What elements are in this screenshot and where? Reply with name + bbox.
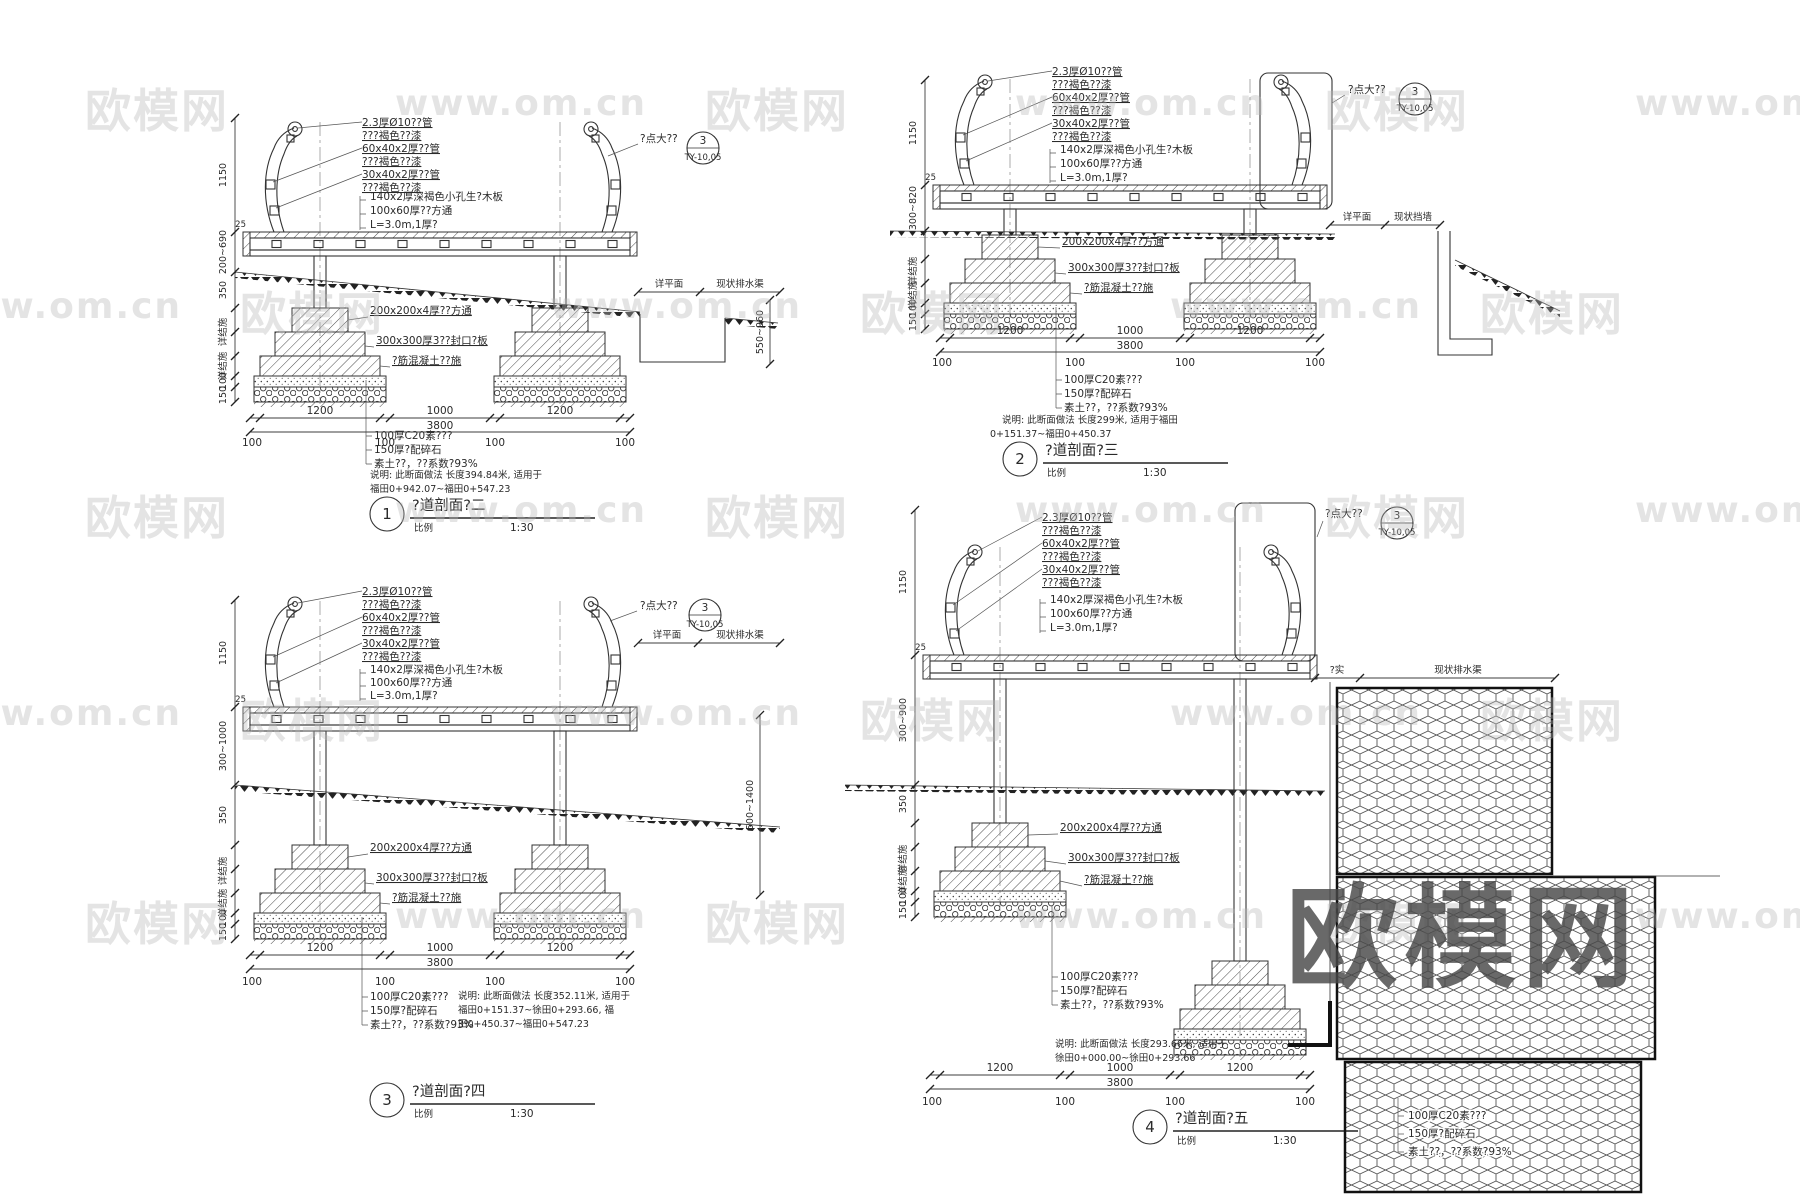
edge-dim-label: 100 xyxy=(375,437,395,449)
footing-spec-label: 300x300厚3??封口?板 xyxy=(376,871,488,884)
footing-spec-label: 200x200x4厚??方通 xyxy=(370,304,472,317)
detail-title: ?道剖面?五 xyxy=(1175,1110,1248,1127)
footing-spec-label: 300x300厚3??封口?板 xyxy=(1068,261,1180,274)
footing-left xyxy=(934,823,1066,922)
base-spec-label: 100厚C20素??? xyxy=(370,990,448,1003)
deck xyxy=(933,185,1327,209)
gabion-block xyxy=(1345,1062,1641,1192)
footing-spec-label: ?筋混凝土??施 xyxy=(1084,281,1154,294)
reference-label: 现状排水渠 xyxy=(1434,664,1482,676)
railing-spec-label: 30x40x2厚??管 xyxy=(362,168,440,181)
deck-spec-label: L=3.0m,1厚? xyxy=(370,690,438,702)
offset-dim-label: 25 xyxy=(235,220,246,230)
edge-dim-label: 100 xyxy=(615,976,635,988)
edge-dim-label: 100 xyxy=(242,976,262,988)
dim-label: 1200 xyxy=(307,405,334,417)
callout-ref: TY-10,05 xyxy=(1378,528,1416,538)
left-railing xyxy=(955,75,992,185)
offset-dim-label: 25 xyxy=(235,695,246,705)
deck-spec-label: 100x60厚??方通 xyxy=(370,204,453,217)
reference-label: 详平面 xyxy=(653,629,682,641)
left-dim-label: 150 xyxy=(898,901,909,919)
left-dim-label: 300~1000 xyxy=(218,721,229,771)
left-dim-label: 1150 xyxy=(218,641,229,665)
dim-total-label: 3800 xyxy=(427,420,454,432)
detail-number: 3 xyxy=(382,1091,392,1109)
left-dim-label: 350 xyxy=(898,795,909,813)
edge-dim-label: 100 xyxy=(485,976,505,988)
railing-spec-label: ???褐色??漆 xyxy=(1052,78,1112,91)
note-line: 徐田0+000.00~徐田0+293.66 xyxy=(1055,1052,1195,1064)
railing-spec-label: 60x40x2厚??管 xyxy=(362,142,440,155)
reference-label: ?实 xyxy=(1330,664,1345,676)
detail-title: ?道剖面?四 xyxy=(412,1083,485,1100)
deck-spec-label: 140x2厚深褐色小孔生?木板 xyxy=(1060,143,1194,156)
dim-label: 1200 xyxy=(997,325,1024,337)
footing-spec-label: 200x200x4厚??方通 xyxy=(1062,235,1164,248)
callout-number: 3 xyxy=(700,135,707,147)
footing-right xyxy=(494,308,626,407)
dim-label: 1200 xyxy=(307,942,334,954)
detail-2: 2.3厚Ø10??管???褐色??漆60x40x2厚??管???褐色??漆30x… xyxy=(890,65,1560,479)
detail-title: ?道剖面?二 xyxy=(412,497,485,514)
gabion-steps: 100厚C20素???150厚?配碎石素土??，??系数?93% xyxy=(1337,688,1720,1192)
deck-spec-label: L=3.0m,1厚? xyxy=(1050,622,1118,634)
dim-label: 1200 xyxy=(547,405,574,417)
note-line: 福田0+151.37~徐田0+293.66, 福 xyxy=(458,1004,614,1016)
gabion-block xyxy=(1337,688,1552,874)
deck-spec-label: L=3.0m,1厚? xyxy=(370,219,438,231)
right-railing xyxy=(584,122,621,232)
footing-right xyxy=(494,845,626,944)
railing-spec-label: 30x40x2厚??管 xyxy=(362,637,440,650)
details-root: 2.3厚Ø10??管???褐色??漆60x40x2厚??管???褐色??漆30x… xyxy=(217,65,1720,1192)
railing-spec-label: ???褐色??漆 xyxy=(1052,104,1112,117)
footing-right xyxy=(1184,235,1316,334)
deck xyxy=(243,232,637,256)
scale-label: 比例 xyxy=(414,1108,433,1120)
dim-label: 1200 xyxy=(547,942,574,954)
left-dim-label: 1150 xyxy=(898,570,909,594)
dim-label: 1200 xyxy=(1237,325,1264,337)
callout-text: ?点大?? xyxy=(1348,83,1386,96)
gabion-block xyxy=(1337,877,1655,1059)
scale-label: 比例 xyxy=(1177,1135,1196,1147)
edge-dim-label: 100 xyxy=(1065,357,1085,369)
edge-dim-label: 100 xyxy=(1055,1096,1075,1108)
left-railing xyxy=(945,545,982,655)
left-dim-label: 1150 xyxy=(908,121,919,145)
deck-spec-label: 140x2厚深褐色小孔生?木板 xyxy=(1050,593,1184,606)
base-spec-label: 150厚?配碎石 xyxy=(1060,984,1128,997)
railing-spec-label: 30x40x2厚??管 xyxy=(1042,563,1120,576)
dim-label: 1000 xyxy=(427,405,454,417)
deck-spec-label: 100x60厚??方通 xyxy=(1050,607,1133,620)
base-spec-label: 100厚C20素??? xyxy=(1408,1109,1486,1122)
edge-dim-label: 100 xyxy=(932,357,952,369)
footing-left xyxy=(254,845,386,944)
base-spec-label: 100厚C20素??? xyxy=(1064,373,1142,386)
deck-spec-label: L=3.0m,1厚? xyxy=(1060,172,1128,184)
note-line: 0+151.37~福田0+450.37 xyxy=(990,428,1111,440)
footing-spec-label: 300x300厚3??封口?板 xyxy=(376,334,488,347)
edge-dim-label: 100 xyxy=(1165,1096,1185,1108)
railing-spec-label: 60x40x2厚??管 xyxy=(1042,537,1120,550)
dim-label: 1200 xyxy=(987,1062,1014,1074)
railing-spec-label: ???褐色??漆 xyxy=(362,598,422,611)
callout-boundary xyxy=(1235,503,1315,661)
edge-dim-label: 100 xyxy=(242,437,262,449)
detail-number: 2 xyxy=(1015,450,1025,468)
left-dim-label: 150 xyxy=(218,923,229,941)
note-line: 说明: 此断面做法 长度299米, 适用于福田 xyxy=(1002,414,1178,426)
edge-dim-label: 100 xyxy=(1295,1096,1315,1108)
retaining-wall xyxy=(1438,231,1492,355)
railing-spec-label: 2.3厚Ø10??管 xyxy=(1042,511,1112,524)
left-dim-label: 150 xyxy=(218,386,229,404)
offset-dim-label: 25 xyxy=(925,173,936,183)
scale-value: 1:30 xyxy=(1143,467,1167,479)
footing-spec-label: 200x200x4厚??方通 xyxy=(370,841,472,854)
detail-1: 2.3厚Ø10??管???褐色??漆60x40x2厚??管???褐色??漆30x… xyxy=(217,114,784,534)
scale-label: 比例 xyxy=(414,522,433,534)
railing-spec-label: ???褐色??漆 xyxy=(1042,524,1102,537)
dim-label: 1000 xyxy=(427,942,454,954)
right-railing xyxy=(1274,75,1311,185)
base-spec-label: 素土??，??系数?93% xyxy=(1408,1145,1512,1158)
note-line: 田0+450.37~福田0+547.23 xyxy=(458,1018,589,1030)
callout-ref: TY-10,05 xyxy=(1396,104,1434,114)
railing-spec-label: 2.3厚Ø10??管 xyxy=(362,116,432,129)
railing-spec-label: 2.3厚Ø10??管 xyxy=(1052,65,1122,78)
detail-title: ?道剖面?三 xyxy=(1045,442,1118,459)
edge-dim-label: 100 xyxy=(1305,357,1325,369)
railing-spec-label: 2.3厚Ø10??管 xyxy=(362,585,432,598)
base-spec-label: 150厚?配碎石 xyxy=(1064,387,1132,400)
left-dim-label: 详结施 xyxy=(217,317,229,346)
railing-spec-label: ???褐色??漆 xyxy=(362,155,422,168)
reference-label: 现状排水渠 xyxy=(716,629,764,641)
edge-dim-label: 100 xyxy=(615,437,635,449)
dim-total-label: 3800 xyxy=(1107,1077,1134,1089)
deck-spec-label: 100x60厚??方通 xyxy=(370,676,453,689)
left-dim-label: 350 xyxy=(218,806,229,824)
base-spec-label: 素土??，??系数?93% xyxy=(1060,998,1164,1011)
railing-spec-label: ???褐色??漆 xyxy=(1042,550,1102,563)
note-line: 福田0+942.07~福田0+547.23 xyxy=(370,483,510,495)
callout-text: ?点大?? xyxy=(640,599,678,612)
deck-spec-label: 140x2厚深褐色小孔生?木板 xyxy=(370,190,504,203)
deck-spec-label: 100x60厚??方通 xyxy=(1060,157,1143,170)
left-dim-label: 350 xyxy=(218,281,229,299)
base-spec-label: 150厚?配碎石 xyxy=(1408,1127,1476,1140)
dim-total-label: 3800 xyxy=(1117,340,1144,352)
footing-spec-label: 200x200x4厚??方通 xyxy=(1060,821,1162,834)
reference-label: 现状排水渠 xyxy=(716,278,764,290)
left-dim-label: 详结施 xyxy=(217,856,229,885)
left-dim-label: 200~690 xyxy=(218,230,229,274)
cad-drawing: 2.3厚Ø10??管???褐色??漆60x40x2厚??管???褐色??漆30x… xyxy=(0,0,1800,1200)
post-right xyxy=(1234,679,1246,961)
base-spec-label: 素土??，??系数?93% xyxy=(374,457,478,470)
callout-text: ?点大?? xyxy=(1325,507,1363,520)
railing-spec-label: ???褐色??漆 xyxy=(362,129,422,142)
detail-number: 1 xyxy=(382,505,392,523)
left-railing xyxy=(265,122,302,232)
callout-ref: TY-10,05 xyxy=(686,620,724,630)
callout-text: ?点大?? xyxy=(640,132,678,145)
left-dim-label: 1150 xyxy=(218,163,229,187)
deck xyxy=(923,655,1317,679)
deck xyxy=(243,707,637,731)
right-dim-label: 550~960 xyxy=(755,310,766,354)
reference-label: 现状挡墙 xyxy=(1394,211,1433,223)
right-railing xyxy=(584,597,621,707)
detail-number: 4 xyxy=(1145,1118,1155,1136)
edge-dim-label: 100 xyxy=(485,437,505,449)
base-spec-label: 150厚?配碎石 xyxy=(370,1004,438,1017)
railing-spec-label: 30x40x2厚??管 xyxy=(1052,117,1130,130)
railing-spec-label: ???褐色??漆 xyxy=(1052,130,1112,143)
scale-value: 1:30 xyxy=(1273,1135,1297,1147)
railing-spec-label: 60x40x2厚??管 xyxy=(1052,91,1130,104)
right-railing xyxy=(1264,545,1301,655)
railing-spec-label: ???褐色??漆 xyxy=(1042,576,1102,589)
scale-value: 1:30 xyxy=(510,522,534,534)
callout-ref: TY-10,05 xyxy=(684,153,722,163)
railing-spec-label: ???褐色??漆 xyxy=(362,624,422,637)
note-line: 说明: 此断面做法 长度394.84米, 适用于 xyxy=(370,469,542,481)
edge-dim-label: 100 xyxy=(375,976,395,988)
dim-label: 1000 xyxy=(1117,325,1144,337)
reference-label: 详平面 xyxy=(1343,211,1372,223)
dim-label: 1200 xyxy=(1227,1062,1254,1074)
base-spec-label: 素土??，??系数?93% xyxy=(1064,401,1168,414)
footing-spec-label: ?筋混凝土??施 xyxy=(392,354,462,367)
edge-dim-label: 100 xyxy=(1175,357,1195,369)
scale-value: 1:30 xyxy=(510,1108,534,1120)
callout-number: 3 xyxy=(1412,86,1419,98)
footing-spec-label: ?筋混凝土??施 xyxy=(1084,873,1154,886)
left-dim-label: 150 xyxy=(908,313,919,331)
footing-spec-label: 300x300厚3??封口?板 xyxy=(1068,851,1180,864)
callout-number: 3 xyxy=(1394,510,1401,522)
right-dim-label: 500~1400 xyxy=(745,780,756,830)
scale-label: 比例 xyxy=(1047,467,1066,479)
detail-3: 2.3厚Ø10??管???褐色??漆60x40x2厚??管???褐色??漆30x… xyxy=(217,585,784,1120)
left-dim-label: 300~900 xyxy=(898,698,909,742)
base-spec-label: 100厚C20素??? xyxy=(1060,970,1138,983)
callout-number: 3 xyxy=(702,602,709,614)
left-dim-label: 300~820 xyxy=(908,186,919,230)
railing-spec-label: ???褐色??漆 xyxy=(362,650,422,663)
edge-dim-label: 100 xyxy=(922,1096,942,1108)
deck-spec-label: 140x2厚深褐色小孔生?木板 xyxy=(370,663,504,676)
dim-total-label: 3800 xyxy=(427,957,454,969)
note-line: 说明: 此断面做法 长度352.11米, 适用于 xyxy=(458,990,630,1002)
offset-dim-label: 25 xyxy=(915,643,926,653)
note-line: 说明: 此断面做法 长度293.66米, 适用于 xyxy=(1055,1038,1227,1050)
footing-spec-label: ?筋混凝土??施 xyxy=(392,891,462,904)
railing-spec-label: 60x40x2厚??管 xyxy=(362,611,440,624)
drawing-sheet: 2.3厚Ø10??管???褐色??漆60x40x2厚??管???褐色??漆30x… xyxy=(0,0,1800,1200)
reference-label: 详平面 xyxy=(655,278,684,290)
